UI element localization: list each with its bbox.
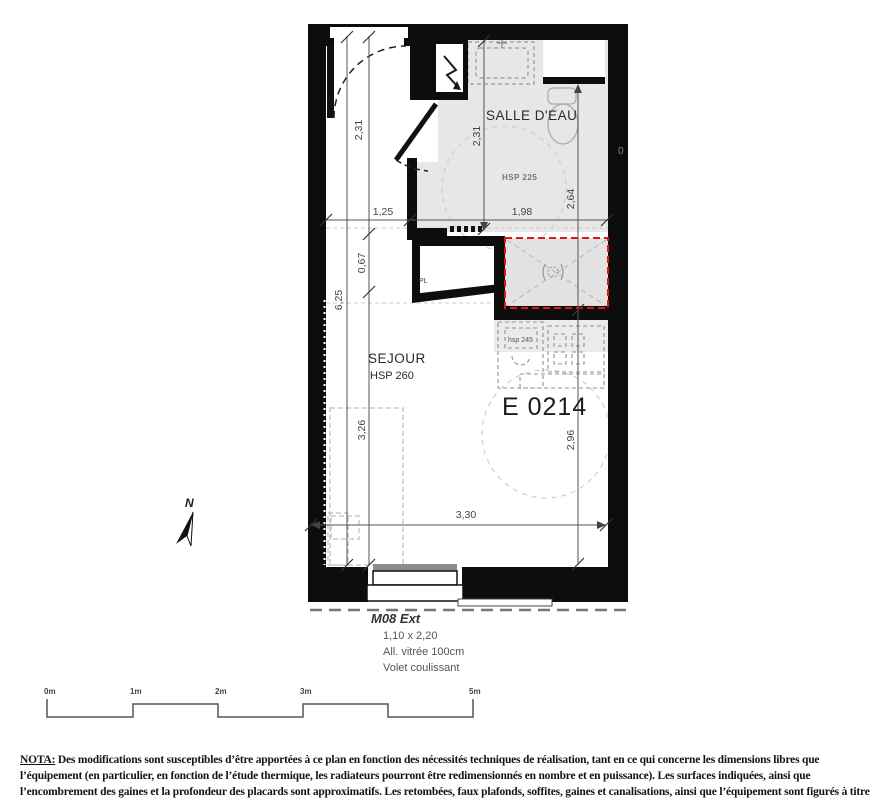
window-shutter: Volet coulissant [383, 662, 459, 674]
dim-left-outer: 6,25 [333, 280, 345, 320]
north-label: N [185, 496, 194, 510]
dim-top-left: 1,25 [363, 206, 403, 218]
window-size: 1,10 x 2,20 [383, 630, 437, 642]
unit-label: E 0214 [502, 393, 587, 422]
dim-right-lower: 2,96 [565, 420, 577, 460]
north-arrow-icon [176, 512, 193, 546]
nota-label: NOTA: [20, 754, 55, 766]
dim-left-seg1: 2,31 [353, 110, 365, 150]
kitchenette-floor [494, 320, 608, 352]
room-label-salle-deau: SALLE D'EAU [486, 108, 577, 123]
floorplan-page: SALLE D'EAU HSP 225 SEJOUR HSP 260 E 021… [0, 0, 896, 800]
window-code: M08 Ext [371, 611, 420, 626]
scale-label-3m: 3m [300, 687, 312, 696]
floorplan-drawing [0, 0, 896, 800]
room-label-sejour: SEJOUR [368, 351, 426, 366]
nota-paragraph: NOTA: Des modifications sont susceptible… [20, 752, 878, 800]
entry-door [327, 46, 406, 118]
closet-label: PL [419, 278, 428, 285]
scale-label-5m: 5m [469, 687, 481, 696]
turning-circle-sejour [482, 370, 610, 498]
dim-top-right: 1,98 [502, 206, 542, 218]
room-hsp-salle-deau: HSP 225 [502, 173, 537, 182]
dim-left-seg3: 3,26 [356, 410, 368, 450]
room-hsp-sejour: HSP 260 [370, 370, 414, 382]
kitchen-hsp-label: hsp 245 [508, 337, 533, 344]
duct-niche [543, 40, 605, 84]
nota-text: Des modifications sont susceptibles d’êt… [20, 754, 870, 800]
electrical-niche [436, 44, 463, 92]
shower [505, 238, 608, 308]
dim-bath-height: 2,31 [471, 116, 483, 156]
window-glazing: All. vitrée 100cm [383, 646, 464, 658]
dim-right-upper: 2,64 [565, 179, 577, 219]
scale-label-1m: 1m [130, 687, 142, 696]
scale-bar [47, 699, 473, 717]
scale-label-0m: 0m [44, 687, 56, 696]
scale-label-2m: 2m [215, 687, 227, 696]
dim-bottom-width: 3,30 [446, 509, 486, 521]
dim-left-seg2: 0,67 [356, 243, 368, 283]
stray-zero: 0 [618, 146, 624, 157]
